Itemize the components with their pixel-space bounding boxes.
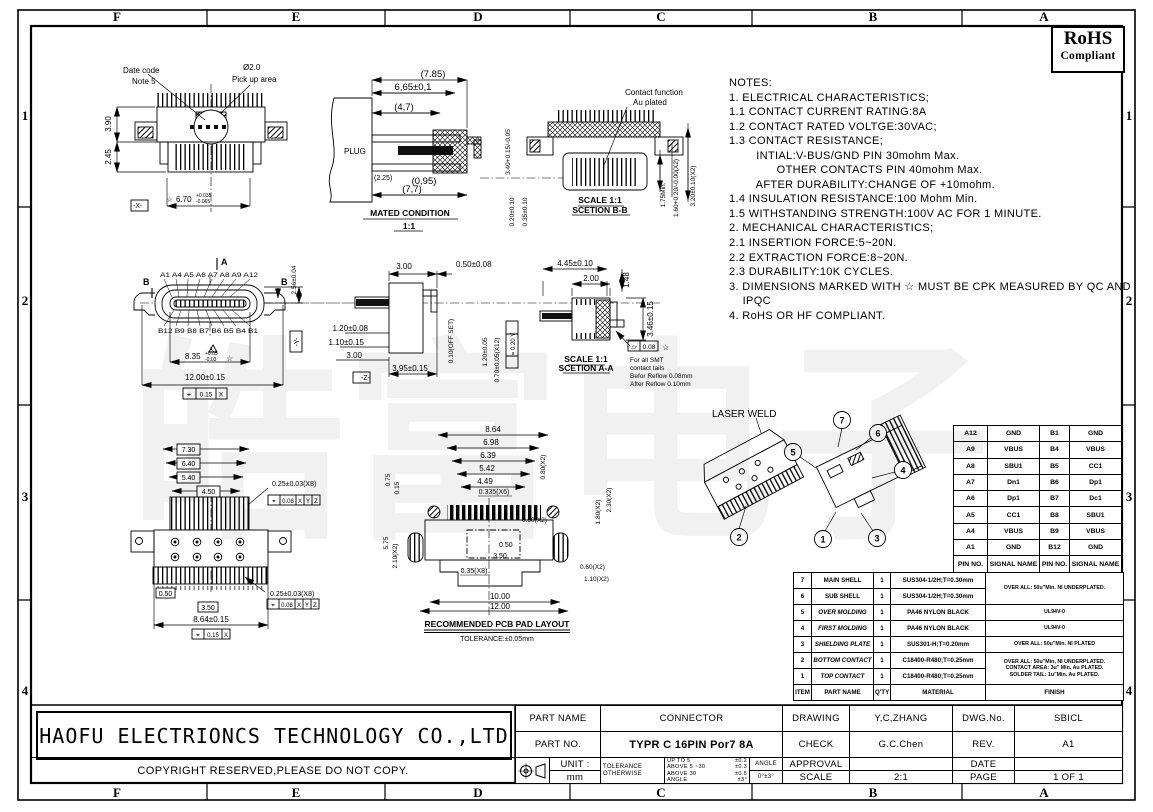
pin-no: A12 <box>954 426 988 442</box>
table-header-row: PIN NO.SIGNAL NAMEPIN NO.SIGNAL NAME <box>954 556 1122 572</box>
zone-col-a-top: A <box>1034 9 1054 25</box>
note-line: INTIAL:V-BUS/GND PIN 30mohm Max. <box>729 149 1131 164</box>
dim-6-39: 6.39 <box>480 451 496 460</box>
signal-name: VBUS <box>988 523 1040 539</box>
dim-0-50: 0.50 <box>499 542 513 549</box>
dim-8-64: 8.64 <box>485 425 501 434</box>
rohs-title: RoHS <box>1053 28 1123 50</box>
table-row: A1GNDB12GND <box>954 540 1122 556</box>
notes-block: NOTES: 1. ELECTRICAL CHARACTERISTICS; 1.… <box>729 76 1131 323</box>
bom-item: 6 <box>794 589 812 605</box>
tolerance-values-cell: UP TO 5±0.2 ABOVE 5 ~30±0.3 ABOVE 30±0.5… <box>664 757 749 783</box>
scale-value: 2:1 <box>849 770 952 783</box>
dim-4-49: 4.49 <box>477 477 493 486</box>
note5-label: Note 5 <box>132 77 156 86</box>
position-value: 0.08 <box>281 603 293 609</box>
drawing-label: DRAWING <box>782 705 849 731</box>
position-datum-z: Z <box>314 499 318 505</box>
smt-note-2: contact tails <box>630 365 665 372</box>
balloon-2: 2 <box>736 533 741 543</box>
smt-note-1: For all SMT <box>630 357 664 364</box>
note-line: 1.1 CONTACT CURRENT RATING:8A <box>729 105 1131 120</box>
dim-12-00: 12.00 <box>490 602 511 611</box>
angle-cell: ANGLE 0°±3° <box>749 757 782 783</box>
bom-table: 7MAIN SHELL1SUS304-1/2H;T=0.30mmOVER ALL… <box>793 572 1124 701</box>
dim-5-40: 5.40 <box>182 475 196 482</box>
table-row: A6Dp1B7Dc1 <box>954 491 1122 507</box>
note-line: OTHER CONTACTS PIN 40mohm Max. <box>729 163 1131 178</box>
pin-no: A1 <box>954 540 988 556</box>
zone-row-1-left: 1 <box>15 108 35 124</box>
bom-finish: OVER ALL: 50u"Min. NI PLATED <box>986 637 1124 653</box>
section-aa-caption: SCETION A-A <box>559 363 614 373</box>
position-datum-y: Y <box>306 499 310 505</box>
bom-item: 5 <box>794 605 812 621</box>
drawing-sheet: Date code Note 5 Ø2.0 Pick up area 3.90 … <box>0 0 1153 812</box>
zone-col-a-bottom: A <box>1034 785 1054 801</box>
dim-0-35: 0.35±0.10 <box>522 197 529 226</box>
copyright-bar: COPYRIGHT RESERVED,PLEASE DO NOT COPY. <box>31 757 515 784</box>
bom-item-header: ITEM <box>794 685 812 701</box>
pin-no: B12 <box>1040 540 1070 556</box>
bom-material: C18400-R480;T=0.25mm <box>891 653 986 669</box>
bom-item: 2 <box>794 653 812 669</box>
scale-label: SCALE <box>782 770 849 783</box>
dim-0-80: 0.80(X2) <box>540 455 547 480</box>
dim-6-70-tol-lower: -0.065 <box>196 199 210 205</box>
zone-col-f-bottom: F <box>107 785 127 801</box>
dim-6-70: 6.70 <box>176 195 192 204</box>
pin-no: A6 <box>954 491 988 507</box>
view-isometric <box>697 412 929 548</box>
note-line: 3. DIMENSIONS MARKED WITH ☆ MUST BE CPK … <box>729 280 1131 295</box>
dim-1-80: 1.80(X2) <box>595 500 602 525</box>
note-line: NOTES: <box>729 76 1131 91</box>
dim-6-40: 6.40 <box>182 461 196 468</box>
dim-3-50-box: 3.50 <box>201 605 215 612</box>
dim-3-00-top: 3.00 <box>396 262 412 271</box>
table-row: 7MAIN SHELL1SUS304-1/2H;T=0.30mmOVER ALL… <box>794 573 1124 589</box>
view-section-bb-labels: Contact function Au plated SCALE 1:1 SCE… <box>572 88 697 217</box>
dim-3-00-bottom: 3.00 <box>346 351 362 360</box>
position-datum-y: Y <box>305 603 309 609</box>
dim-7-7: (7,7) <box>402 184 422 195</box>
parallelism-frame: = 0.20 Y <box>511 333 517 355</box>
pickup-area-label: Pick up area <box>232 75 277 84</box>
pin-no: A7 <box>954 474 988 490</box>
section-b-right-label: B <box>281 277 288 287</box>
zone-col-e-bottom: E <box>286 785 306 801</box>
dim-10-00: 10.00 <box>490 592 511 601</box>
bom-qty: 1 <box>874 573 891 589</box>
bom-part-name: OVER MOLDING <box>812 605 874 621</box>
signal-name: Dc1 <box>1070 491 1122 507</box>
pin-no: B8 <box>1040 507 1070 523</box>
note-line: 2.3 DURABILITY:10K CYCLES. <box>729 265 1131 280</box>
note-line: 1.5 WITHSTANDING STRENGTH:100V AC FOR 1 … <box>729 207 1131 222</box>
note-line: 1.4 INSULATION RESISTANCE:100 Mohm Min. <box>729 192 1131 207</box>
plug-label: PLUG <box>344 147 366 156</box>
dim-4-7: (4,7) <box>394 102 414 113</box>
cpk-star: ☆ <box>226 354 233 363</box>
dim-1-20: 1.20±0.08 <box>332 324 368 333</box>
tolerance-row: ANGLE±3° <box>667 777 747 783</box>
pin-no: A8 <box>954 458 988 474</box>
dim-0-25-x8-upper: 0.25±0.03(X8) <box>272 481 316 488</box>
zone-col-b-bottom: B <box>863 785 883 801</box>
signal-name: Dp1 <box>988 491 1040 507</box>
dim-2-00: 2.00 <box>583 274 599 283</box>
mated-condition-caption: MATED CONDITION <box>370 208 450 218</box>
bom-part-name: SUB SHELL <box>812 589 874 605</box>
check-label: CHECK <box>782 731 849 757</box>
bom-finish: UL94V-0 <box>986 605 1124 621</box>
pin-no: B1 <box>1040 426 1070 442</box>
position-symbol: ⌖ <box>196 632 200 639</box>
dim-8-35: 8.35 <box>185 352 201 361</box>
balloon-4: 4 <box>900 466 905 476</box>
bom-qty: 1 <box>874 637 891 653</box>
signal-name: VBUS <box>1070 523 1122 539</box>
table-row: 4FIRST MOLDING1PA46 NYLON BLACKUL94V-0 <box>794 621 1124 637</box>
date-label: DATE <box>952 757 1014 770</box>
table-header-row: ITEMPART NAMEQ'TYMATERIALFINISH <box>794 685 1124 701</box>
pin-no-header: PIN NO. <box>954 556 988 572</box>
dim-1-60: 1.60+0.20/-0.00(X2) <box>673 159 680 217</box>
dim-2-10: 2.10(X2) <box>392 544 399 569</box>
rohs-subtitle: Compliant <box>1053 50 1123 63</box>
smt-note-4: After Reflow 0.10mm <box>630 381 691 388</box>
balloon-5: 5 <box>790 448 795 458</box>
dim-1-10: 1.10(X2) <box>584 576 609 583</box>
signal-name: CC1 <box>1070 458 1122 474</box>
view-bottom <box>131 444 320 639</box>
dim-3-46: 3.46±0.15 <box>646 301 655 337</box>
pin-no: B6 <box>1040 474 1070 490</box>
dim-0-60-top: 0.60(X2) <box>522 517 547 524</box>
mated-condition-scale: 1:1 <box>403 221 416 231</box>
dwg-no-label: DWG.No. <box>952 705 1014 731</box>
position-datum: X <box>219 392 224 399</box>
section-bb-scale: SCALE 1:1 <box>578 195 622 205</box>
dim-0-35-x8: 0.35(X8) <box>461 568 488 575</box>
bom-material: SUS304-1/2H;T=0.30mm <box>891 573 986 589</box>
section-bb-caption: SCETION B-B <box>572 205 627 215</box>
part-name-value: CONNECTOR <box>600 705 782 731</box>
part-no-label: PART NO. <box>515 731 600 757</box>
bom-finish-header: FINISH <box>986 685 1124 701</box>
signal-name: SBU1 <box>988 458 1040 474</box>
pin-labels-bottom: B12 B9 B8 B7 B6 B5 B4 B1 <box>158 329 259 335</box>
table-row: A8SBU1B5CC1 <box>954 458 1122 474</box>
dim-3-95: 3.95±0.15 <box>392 364 428 373</box>
bom-item: 4 <box>794 621 812 637</box>
position-datum-x: X <box>297 603 301 609</box>
date-code-label: Date code <box>123 66 160 75</box>
pin-no-header: PIN NO. <box>1040 556 1070 572</box>
pin-no: A4 <box>954 523 988 539</box>
zone-row-2-left: 2 <box>15 293 35 309</box>
zone-col-c-top: C <box>651 9 671 25</box>
dim-2-25: (2.25) <box>374 175 392 182</box>
contact-function-label: Contact function <box>625 88 683 97</box>
dim-4-50: 4.50 <box>202 489 216 496</box>
position-value: 0.08 <box>282 499 294 505</box>
zone-col-d-top: D <box>468 9 488 25</box>
datum-x-label: -X- <box>133 203 143 210</box>
signal-name: Dp1 <box>1070 474 1122 490</box>
balloon-7: 7 <box>839 416 844 426</box>
rohs-badge: RoHS Compliant <box>1051 26 1125 73</box>
third-angle-projection-icon <box>518 761 548 781</box>
title-block: PART NAME CONNECTOR DRAWING Y,C,ZHANG DW… <box>515 705 1122 783</box>
dia-label: Ø2.0 <box>243 63 261 72</box>
dim-2-56: 2.56±0.04 <box>291 265 298 294</box>
rev-label: REV. <box>952 731 1014 757</box>
datum-z-label: -Z- <box>361 375 371 382</box>
bom-part-name-header: PART NAME <box>812 685 874 701</box>
dim-2-45: 2.45 <box>104 149 113 165</box>
zone-row-3-right: 3 <box>1119 489 1139 505</box>
signal-name: SBU1 <box>1070 507 1122 523</box>
bom-part-name: FIRST MOLDING <box>812 621 874 637</box>
zone-col-d-bottom: D <box>468 785 488 801</box>
cpk-star: ☆ <box>166 195 173 204</box>
page-value: 1 OF 1 <box>1014 770 1122 783</box>
balloon-3: 3 <box>874 534 879 544</box>
bom-material: PA46 NYLON BLACK <box>891 605 986 621</box>
signal-name: GND <box>988 540 1040 556</box>
angle-value: 0°±3° <box>750 770 782 783</box>
bom-qty-header: Q'TY <box>874 685 891 701</box>
bom-finish: OVER ALL: 50u"Min. NI UNDERPLATED. <box>986 573 1124 605</box>
pin-no: A9 <box>954 442 988 458</box>
signal-name: Dn1 <box>988 474 1040 490</box>
bom-qty: 1 <box>874 605 891 621</box>
dim-12-00: 12.00±0.15 <box>185 373 226 382</box>
note-line: 4. RoHS OR HF COMPLIANT. <box>729 309 1131 324</box>
signal-name-header: SIGNAL NAME <box>988 556 1040 572</box>
dim-0-60-bottom: 0.60(X2) <box>580 564 605 571</box>
unit-value: mm <box>550 770 600 783</box>
zone-col-b-top: B <box>863 9 883 25</box>
tol-value: ±3° <box>738 777 747 783</box>
signal-name: CC1 <box>988 507 1040 523</box>
date-value <box>1014 757 1122 770</box>
note-line: 1.2 CONTACT RATED VOLTGE:30VAC; <box>729 120 1131 135</box>
bom-qty: 1 <box>874 621 891 637</box>
note-line: 1. ELECTRICAL CHARACTERISTICS; <box>729 91 1131 106</box>
dim-1-48: 1.48 <box>622 272 631 288</box>
unit-cell: UNIT : mm <box>549 757 600 783</box>
bom-qty: 1 <box>874 669 891 685</box>
part-no-value: TYPR C 16PIN Por7 8A <box>600 731 782 757</box>
zone-col-f-top: F <box>107 9 127 25</box>
zone-row-4-left: 4 <box>15 683 35 699</box>
table-row: A9VBUSB4VBUS <box>954 442 1122 458</box>
view-front-elevation <box>117 74 287 211</box>
bom-material: C18400-R480;T=0.25mm <box>891 669 986 685</box>
pin-assignment-table: A12GNDB1GND A9VBUSB4VBUS A8SBU1B5CC1 A7D… <box>953 425 1122 573</box>
dim-5-75: 5.75 <box>383 536 390 549</box>
dim-0-20: 0.20±0.10 <box>509 197 516 226</box>
note-line: 2. MECHANICAL CHARACTERISTICS; <box>729 221 1131 236</box>
dim-1-20b: 1.20±0.05 <box>482 337 489 366</box>
dim-0-70: 0.70±0.05(X12) <box>494 338 501 383</box>
tolerance-cell: TOLERANCE OTHERWISE <box>600 757 664 783</box>
bom-part-name: SHIELDING PLATE <box>812 637 874 653</box>
dim-8-35-tol-lower: -0.03 <box>205 357 217 363</box>
bom-qty: 1 <box>874 653 891 669</box>
company-name-box: HAOFU ELECTRIONCS TECHNOLOGY CO.,LTD <box>36 711 512 760</box>
dim-7-30: 7.30 <box>182 447 196 454</box>
position-symbol: ⌖ <box>272 498 276 505</box>
company-name: HAOFU ELECTRIONCS TECHNOLOGY CO.,LTD <box>39 724 508 748</box>
dim-0-50: 0.50±0.08 <box>456 260 492 269</box>
bom-item: 1 <box>794 669 812 685</box>
part-name-label: PART NAME <box>515 705 600 731</box>
signal-name: GND <box>1070 426 1122 442</box>
bom-material: SUS304-1/2H;T=0.30mm <box>891 589 986 605</box>
dim-0-25-x8-lower: 0.25±0.03(X8) <box>270 591 314 598</box>
note-line: AFTER DURABILITY:CHANGE OF +10mohm. <box>729 178 1131 193</box>
pin-no: B4 <box>1040 442 1070 458</box>
dim-8-64: 8.64±0.15 <box>193 615 229 624</box>
note-line: 2.1 INSERTION FORCE:5~20N. <box>729 236 1131 251</box>
signal-name: GND <box>1070 540 1122 556</box>
dim-7-85: (7.85) <box>421 69 446 80</box>
dim-2-30: 2.30(X2) <box>606 488 613 513</box>
bom-material: SUS301-H;T=0.20mm <box>891 637 986 653</box>
pcb-layout-caption: RECOMMENDED PCB PAD LAYOUT <box>425 619 571 629</box>
pin-no: B9 <box>1040 523 1070 539</box>
table-row: 2BOTTOM CONTACT1C18400-R480;T=0.25mmOVER… <box>794 653 1124 669</box>
table-row: A5CC1B8SBU1 <box>954 507 1122 523</box>
view-face-pins-labels: A B B A1 A4 A5 A6 A7 A8 A9 A12 B12 B9 B8… <box>143 257 301 399</box>
dwg-no-value: SBICL <box>1014 705 1122 731</box>
bom-part-name: BOTTOM CONTACT <box>812 653 874 669</box>
zone-col-e-top: E <box>286 9 306 25</box>
drawing-value: Y,C,ZHANG <box>849 705 952 731</box>
pin-no: B7 <box>1040 491 1070 507</box>
table-row: A7Dn1B6Dp1 <box>954 474 1122 490</box>
unit-label: UNIT : <box>550 758 600 770</box>
table-row: A12GNDB1GND <box>954 426 1122 442</box>
bom-item: 7 <box>794 573 812 589</box>
dim-3-20: 3.20±0.10(X2) <box>690 165 697 206</box>
bom-finish: OVER ALL: 50u"Min, NI UNDERPLATED. CONTA… <box>986 653 1124 685</box>
dim-offset: 0.10(OFF SET) <box>448 319 455 363</box>
datum-y-label: -Y- <box>294 337 301 346</box>
dim-1-75min: 1.75Min. <box>660 182 667 207</box>
signal-name: VBUS <box>1070 442 1122 458</box>
dim-6-98: 6.98 <box>483 438 499 447</box>
tolerance-label-2: OTHERWISE <box>603 771 662 777</box>
bom-part-name: TOP CONTACT <box>812 669 874 685</box>
dim-6-65: 6,65±0,1 <box>395 82 432 93</box>
table-row: A4VBUSB9VBUS <box>954 523 1122 539</box>
au-plated-label: Au plated <box>633 98 667 107</box>
check-value: G.C.Chen <box>849 731 952 757</box>
projection-symbol <box>515 757 549 783</box>
zone-row-3-left: 3 <box>15 489 35 505</box>
section-a-label: A <box>221 257 228 267</box>
signal-name: VBUS <box>988 442 1040 458</box>
bom-finish: UL94V-0 <box>986 621 1124 637</box>
bom-material: PA46 NYLON BLACK <box>891 621 986 637</box>
signal-name-header: SIGNAL NAME <box>1070 556 1122 572</box>
note-line: 1.3 CONTACT RESISTANCE; <box>729 134 1131 149</box>
dim-0-335: 0.335(X6) <box>479 489 510 496</box>
pcb-layout-tolerance: TOLERANCE:±0.05mm <box>460 636 534 643</box>
bom-item: 3 <box>794 637 812 653</box>
table-row: 5OVER MOLDING1PA46 NYLON BLACKUL94V-0 <box>794 605 1124 621</box>
dim-3-90: 3.90 <box>104 116 113 132</box>
table-row: 3SHIELDING PLATE1SUS301-H;T=0.20mmOVER A… <box>794 637 1124 653</box>
laser-weld-label: LASER WELD <box>712 409 776 420</box>
bom-part-name: MAIN SHELL <box>812 573 874 589</box>
note-line: IPQC <box>729 294 1131 309</box>
flatness-symbol: ▱ <box>631 344 637 351</box>
bom-material-header: MATERIAL <box>891 685 986 701</box>
rev-value: A1 <box>1014 731 1122 757</box>
approval-value <box>849 757 952 770</box>
dim-3-50: 3.50 <box>493 553 507 560</box>
balloon-1: 1 <box>820 535 825 545</box>
dim-0-75: 0.75 <box>385 473 392 486</box>
dim-5-42: 5.42 <box>479 464 495 473</box>
bom-qty: 1 <box>874 589 891 605</box>
flatness-value: 0.08 <box>643 344 656 351</box>
dim-0-15: 0.15 <box>394 481 401 494</box>
page-label: PAGE <box>952 770 1014 783</box>
position-datum-z: Z <box>313 603 317 609</box>
pin-no: A5 <box>954 507 988 523</box>
balloon-6: 6 <box>875 429 880 439</box>
dim-3-40: 3.40+0.15/-0.05 <box>505 129 512 175</box>
position-symbol: ⌖ <box>187 392 191 399</box>
angle-label: ANGLE <box>750 758 782 770</box>
note-line: 2.2 EXTRACTION FORCE:8~20N. <box>729 251 1131 266</box>
position-datum-x: X <box>298 499 302 505</box>
dim-1-10: 1.10±0.15 <box>328 338 364 347</box>
position-value: 0.15 <box>200 392 213 399</box>
zone-col-c-bottom: C <box>651 785 671 801</box>
tol-range: ANGLE <box>667 777 687 783</box>
position-datum-x: X <box>224 633 228 639</box>
position-value: 0.15 <box>207 633 219 639</box>
section-b-left-label: B <box>143 277 150 287</box>
cpk-star: ☆ <box>662 343 669 352</box>
position-symbol: ⌖ <box>271 602 275 609</box>
pin-labels-top: A1 A4 A5 A6 A7 A8 A9 A12 <box>160 273 259 279</box>
pin-no: B5 <box>1040 458 1070 474</box>
dim-0-50-box: 0.50 <box>159 591 173 598</box>
smt-note-3: Befor Reflow 0.08mm <box>630 373 693 380</box>
dim-4-45: 4.45±0.10 <box>557 259 593 268</box>
approval-label: APPROVAL <box>782 757 849 770</box>
signal-name: GND <box>988 426 1040 442</box>
copyright-text: COPYRIGHT RESERVED,PLEASE DO NOT COPY. <box>137 765 408 777</box>
